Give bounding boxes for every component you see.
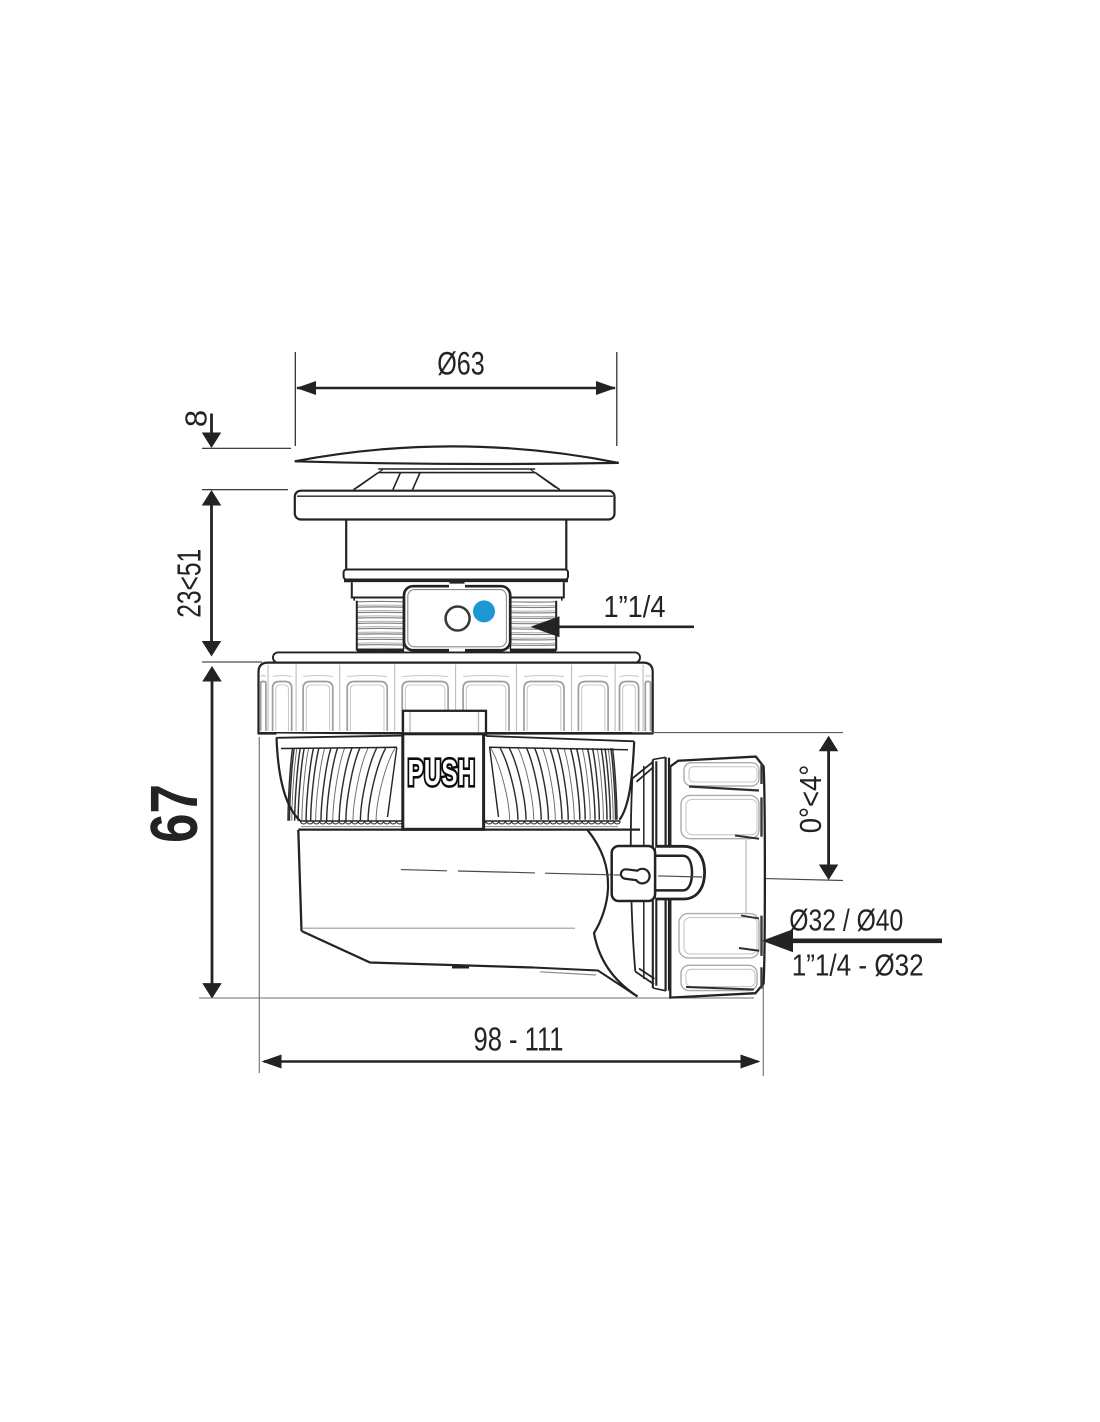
svg-text:8: 8	[179, 410, 214, 427]
svg-text:Ø32 / Ø40: Ø32 / Ø40	[789, 903, 903, 938]
svg-text:23<51: 23<51	[171, 549, 208, 618]
svg-text:98 - 111: 98 - 111	[474, 1022, 564, 1059]
svg-text:0°<4°: 0°<4°	[793, 765, 828, 834]
svg-text:1”1/4: 1”1/4	[604, 589, 666, 624]
svg-text:67: 67	[137, 784, 212, 843]
svg-text:1”1/4 - Ø32: 1”1/4 - Ø32	[792, 948, 924, 983]
svg-text:PUSH: PUSH	[408, 752, 476, 793]
svg-text:Ø63: Ø63	[437, 346, 485, 382]
